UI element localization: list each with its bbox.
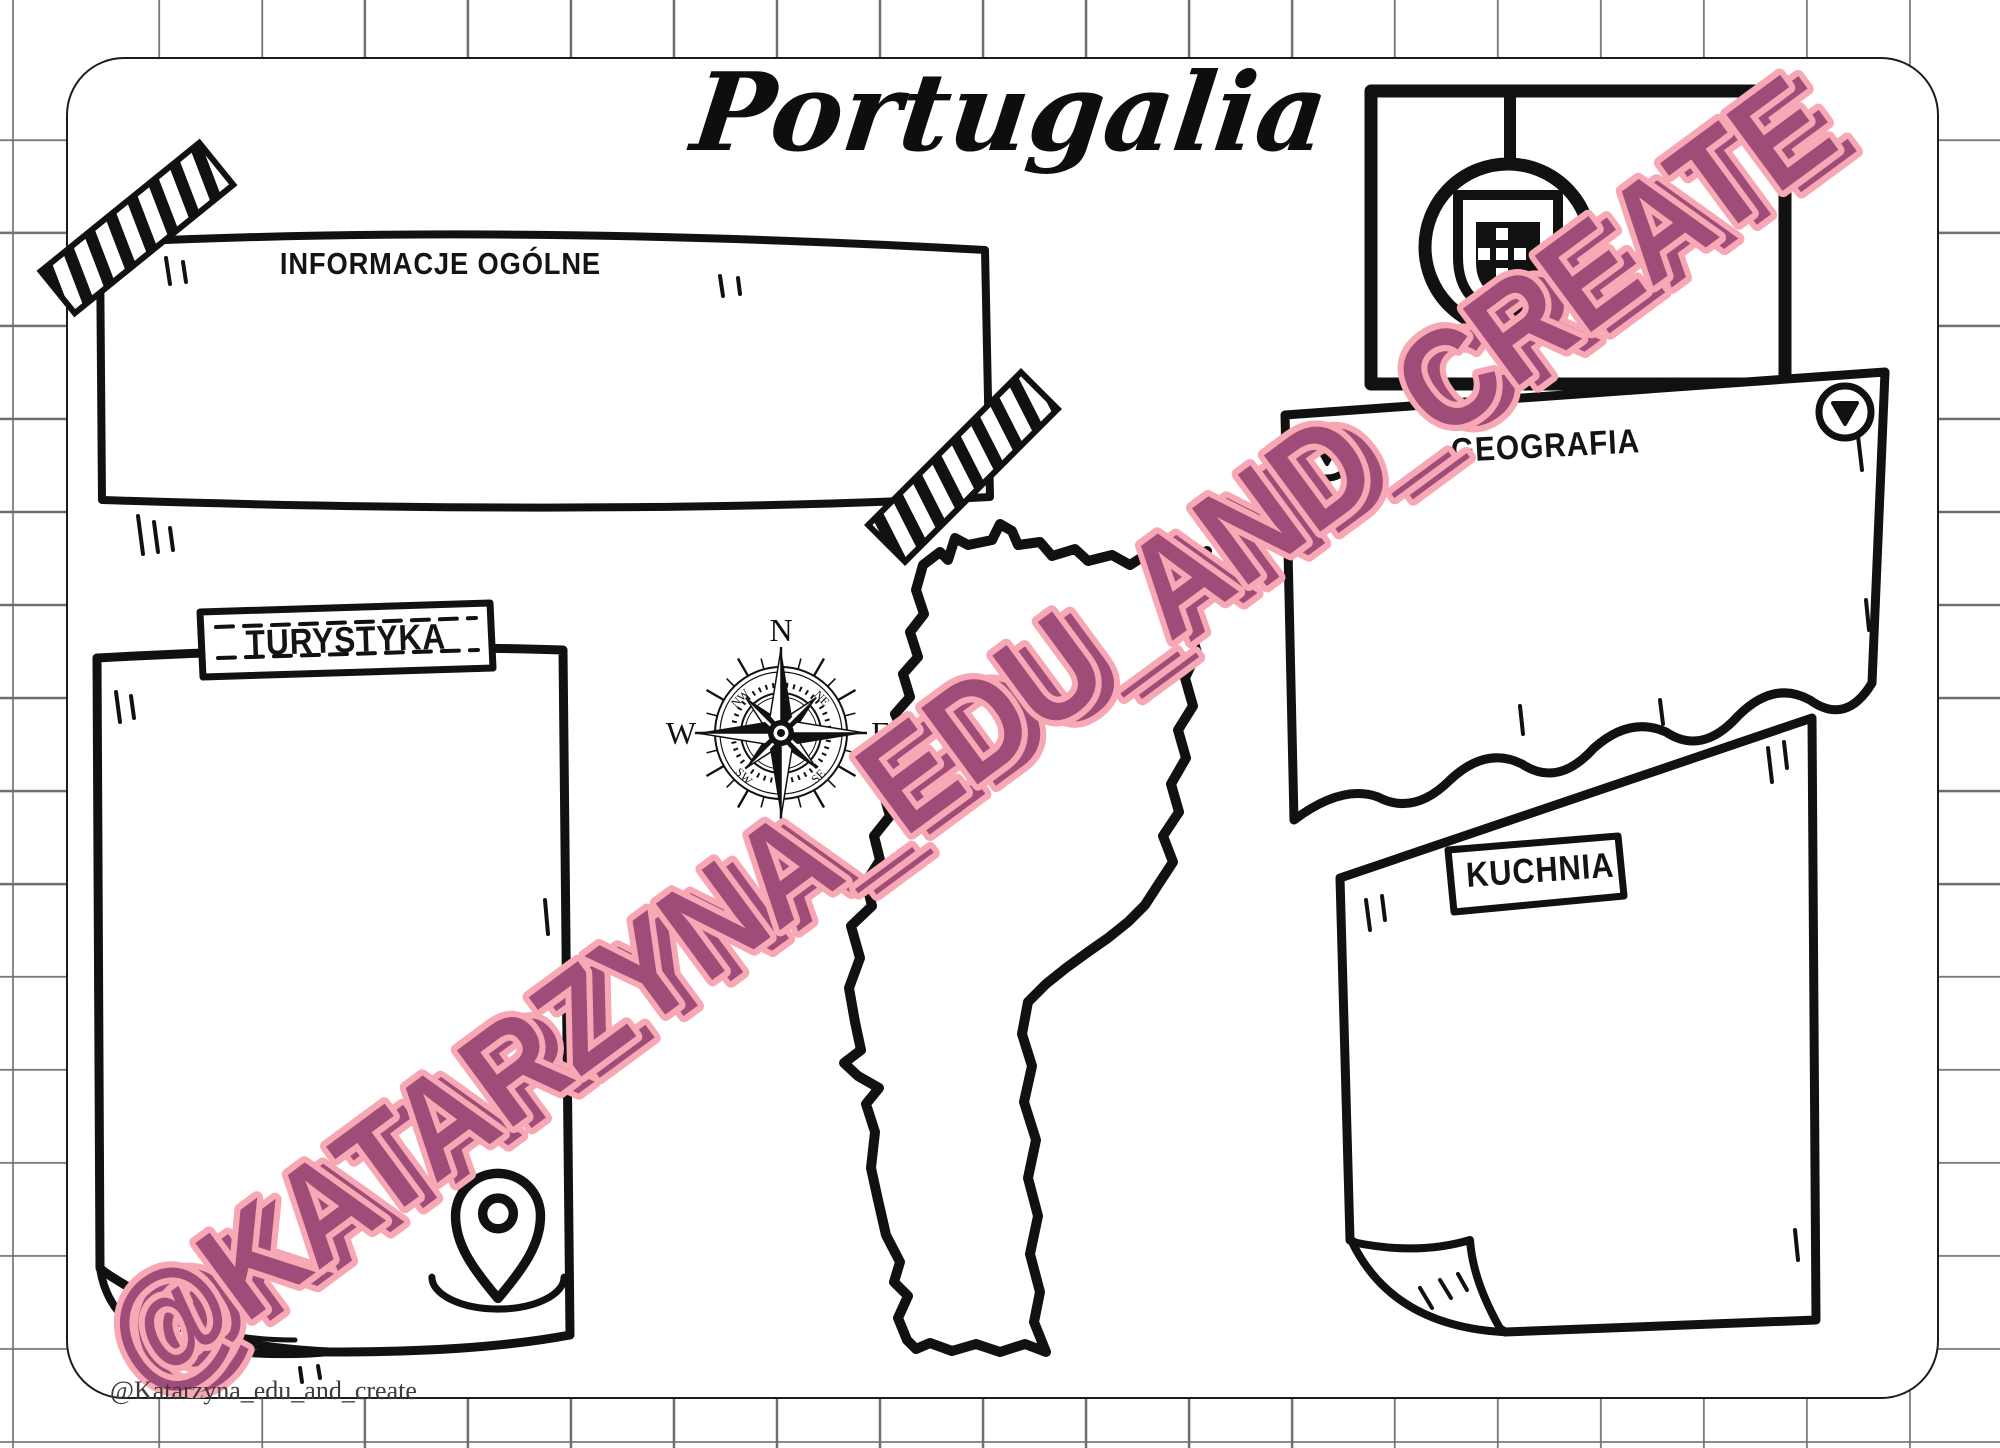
cuisine-panel (1340, 718, 1816, 1332)
portugal-shield-icon (1458, 195, 1558, 313)
compass-rose-icon: N E S W NW NE SW SE (666, 612, 891, 856)
worksheet-artwork: N E S W NW NE SW SE (0, 0, 2000, 1448)
portugal-map-outline-icon (844, 524, 1207, 1352)
pushpin-icon (1301, 426, 1353, 478)
pushpin-icon (1819, 386, 1871, 438)
worksheet: N E S W NW NE SW SE Portugalia INFORMACJ… (0, 0, 2000, 1448)
tourism-heading-text: TURYSTYKA (245, 616, 447, 665)
compass-north-label: N (769, 612, 792, 648)
compass-star (697, 649, 865, 817)
general-info-panel (100, 234, 990, 554)
portugal-flag-icon (1371, 91, 1785, 384)
general-info-heading-text: INFORMACJE OGÓLNE (279, 246, 600, 282)
compass-east-label: E (871, 715, 891, 751)
compass-ne-label: NE (811, 688, 832, 709)
general-info-heading: INFORMACJE OGÓLNE (250, 246, 630, 282)
compass-south-label: S (772, 820, 790, 856)
author-credit: @Katarzyna_edu_and_create (110, 1376, 417, 1406)
compass-sw-label: SW (733, 765, 756, 788)
page-title: Portugalia (652, 50, 1367, 176)
compass-west-label: W (666, 715, 697, 751)
tourism-panel (97, 603, 570, 1382)
